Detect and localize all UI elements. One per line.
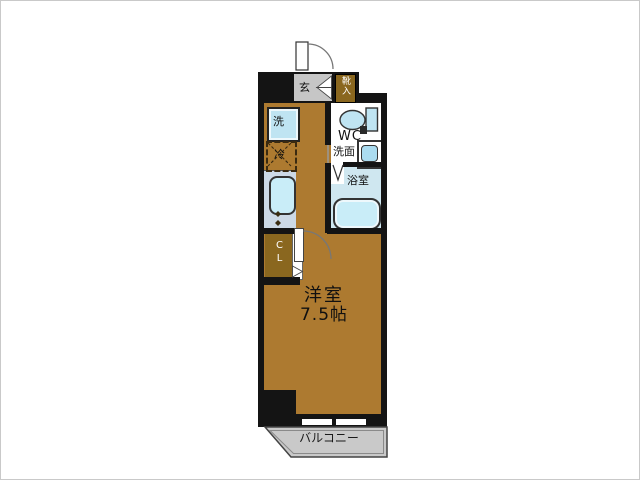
floor-plan: 玄 靴入 洗 冷 WC 洗面 浴室 CL 洋室 7.5帖 バルコニー: [0, 0, 640, 480]
bath-label: 浴室: [347, 175, 369, 186]
wall-room-top-right: [327, 228, 381, 234]
wall-wc-left-lower: [325, 163, 331, 233]
shoe-cabinet-label: 靴入: [340, 76, 349, 96]
bathtub: [333, 198, 381, 230]
washbasin-bowl: [361, 145, 378, 162]
wall-right: [381, 95, 387, 427]
wc-label: WC: [338, 130, 362, 143]
closet-door: [292, 230, 303, 280]
washroom-label: 洗面: [333, 146, 355, 157]
genkan-label: 玄: [299, 82, 310, 93]
kitchen-sink: [269, 176, 296, 215]
entrance-door-leaf-icon: [296, 42, 308, 70]
wall-left: [258, 72, 264, 427]
pillar: [262, 390, 296, 416]
wall-room-top-left: [258, 228, 298, 234]
room-size: 7.5帖: [284, 307, 364, 324]
wall-closet-bottom: [258, 277, 300, 285]
wall-bath-divider: [343, 162, 381, 167]
room-label: 洋室 7.5帖: [284, 287, 364, 324]
closet-label: CL: [274, 240, 284, 266]
balcony-label: バルコニー: [294, 432, 364, 444]
fridge-label: 冷: [274, 149, 285, 160]
entrance-door-swing-icon: [308, 44, 333, 69]
washer-label: 洗: [273, 116, 284, 127]
wall-wc-left-upper: [325, 103, 331, 145]
room-name: 洋室: [284, 287, 364, 305]
